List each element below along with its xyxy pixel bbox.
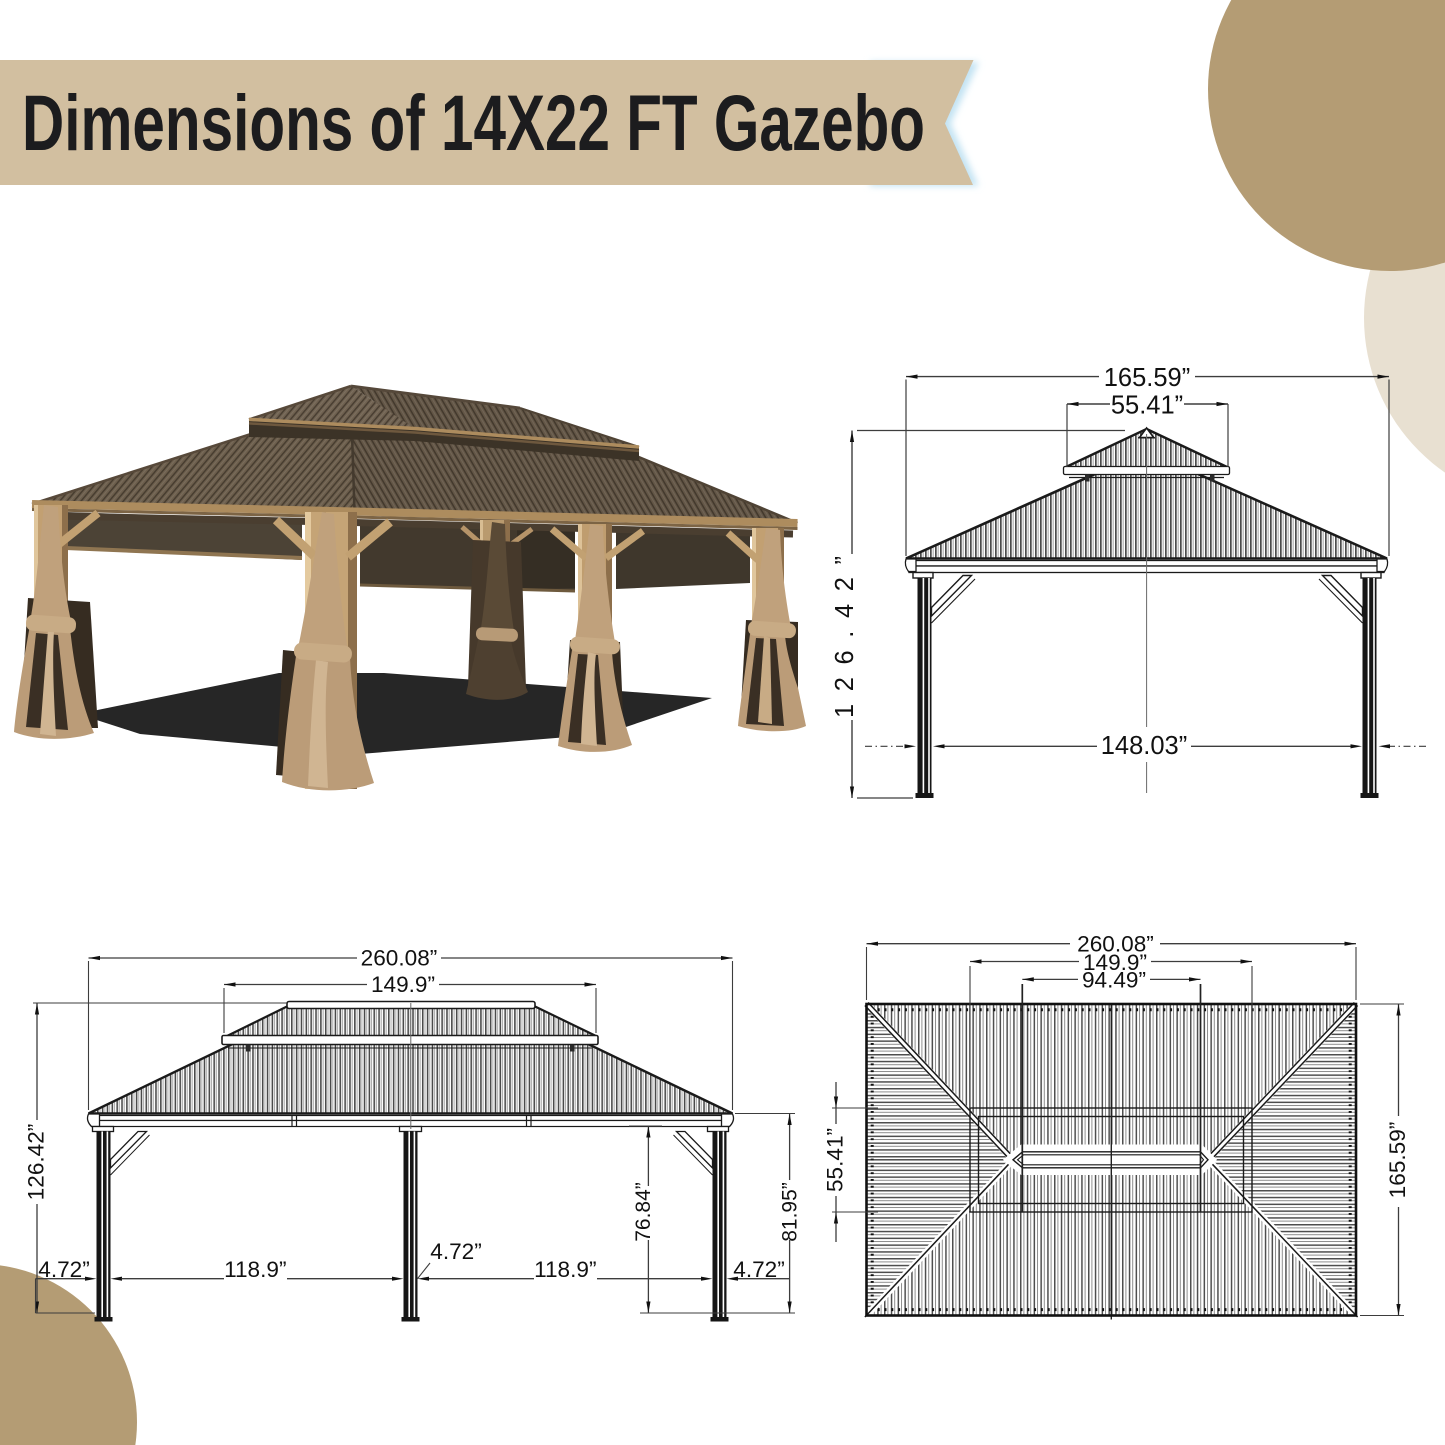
svg-text:94.49”: 94.49” [1082, 968, 1146, 993]
svg-text:149.9”: 149.9” [371, 972, 435, 997]
svg-text:165.59”: 165.59” [1385, 1122, 1410, 1199]
svg-text:4.72”: 4.72” [733, 1257, 785, 1282]
svg-text:4.72”: 4.72” [38, 1257, 90, 1282]
svg-text:118.9”: 118.9” [224, 1257, 286, 1282]
svg-text:118.9”: 118.9” [534, 1257, 596, 1282]
svg-text:4.72”: 4.72” [430, 1239, 482, 1264]
svg-text:126.42”: 126.42” [24, 1124, 49, 1201]
svg-text:165.59”: 165.59” [1104, 364, 1191, 392]
svg-text:81.95”: 81.95” [779, 1182, 802, 1242]
svg-text:260.08”: 260.08” [361, 946, 438, 971]
svg-text:55.41”: 55.41” [1111, 391, 1183, 419]
svg-text:76.84”: 76.84” [632, 1182, 655, 1242]
svg-text:55.41”: 55.41” [823, 1128, 848, 1192]
svg-text:148.03”: 148.03” [1101, 732, 1188, 760]
svg-text:Dimensions of 14X22 FT Gazebo: Dimensions of 14X22 FT Gazebo [22, 78, 925, 167]
